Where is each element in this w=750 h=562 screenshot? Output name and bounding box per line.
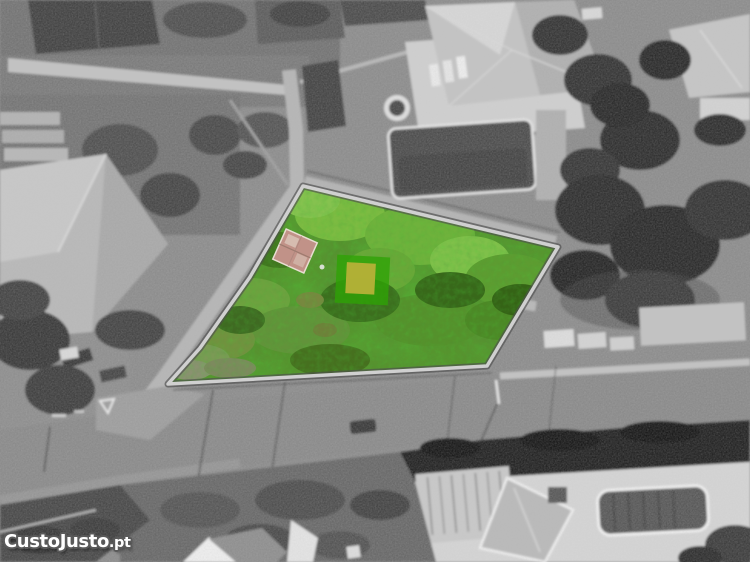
watermark-suffix: .pt — [109, 535, 131, 551]
plot-marker — [335, 255, 390, 306]
listing-photo: CustoJusto.pt — [0, 0, 750, 562]
custojusto-watermark: CustoJusto.pt — [4, 533, 131, 551]
marker-yellow-square — [345, 262, 376, 294]
watermark-brand: CustoJusto — [4, 531, 109, 552]
aerial-photo — [0, 0, 750, 562]
